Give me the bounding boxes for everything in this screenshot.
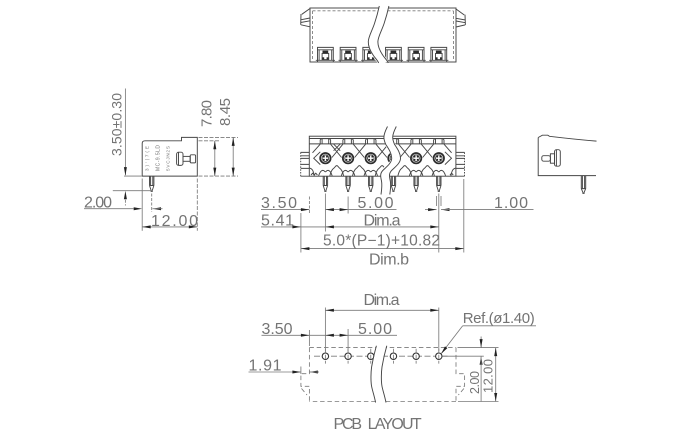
svg-text:LAYOUT: LAYOUT	[368, 416, 422, 433]
svg-text:Ref.(ø1.40): Ref.(ø1.40)	[463, 310, 535, 327]
svg-text:1.00: 1.00	[494, 195, 528, 212]
svg-text:5.0*(P−1)+10.82: 5.0*(P−1)+10.82	[323, 232, 440, 249]
svg-text:8.45: 8.45	[217, 98, 234, 126]
svg-text:3)'|7(E: 3)'|7(E	[145, 146, 150, 171]
svg-text:Dim.b: Dim.b	[369, 252, 409, 269]
svg-text:5VCJN2S: 5VCJN2S	[165, 146, 170, 171]
svg-text:5.00: 5.00	[358, 195, 394, 212]
svg-text:7.80: 7.80	[199, 100, 216, 127]
svg-text:MC-9.5LD: MC-9.5LD	[155, 145, 161, 171]
svg-text:3.50±0.30: 3.50±0.30	[109, 93, 125, 156]
svg-text:12.00: 12.00	[480, 359, 495, 393]
svg-text:Dim.a: Dim.a	[364, 292, 400, 309]
svg-text:PCB: PCB	[334, 416, 363, 433]
svg-text:Dim.a: Dim.a	[364, 212, 401, 229]
svg-text:5.00: 5.00	[358, 321, 392, 338]
